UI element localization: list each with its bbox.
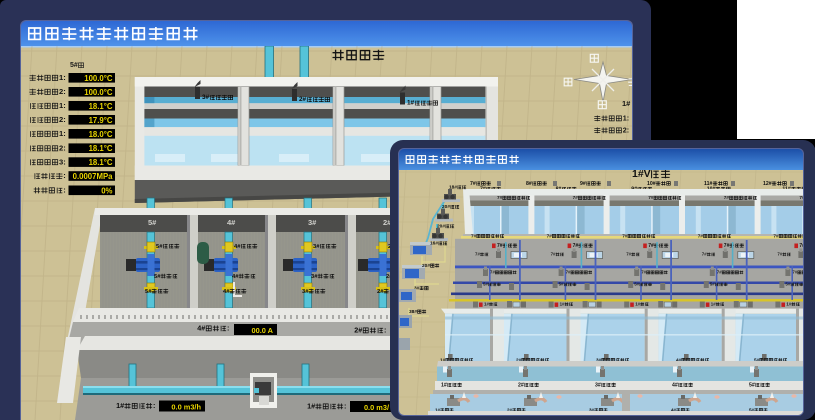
svg-text:3#: 3# xyxy=(313,244,320,250)
svg-text:7#: 7# xyxy=(497,243,503,249)
svg-text:100.0°C: 100.0°C xyxy=(84,88,113,97)
svg-text:7#: 7# xyxy=(648,243,654,249)
svg-text:1:: 1: xyxy=(59,101,66,110)
svg-text::: : xyxy=(384,325,386,334)
svg-text:7#: 7# xyxy=(547,233,553,238)
svg-text:5#: 5# xyxy=(70,62,78,69)
svg-text:38#: 38# xyxy=(409,309,417,315)
svg-text:1:: 1: xyxy=(623,113,629,122)
svg-text::: : xyxy=(63,171,66,180)
svg-text:1#: 1# xyxy=(635,301,640,306)
svg-text:7#: 7# xyxy=(566,270,571,275)
svg-text:0.0007MPa: 0.0007MPa xyxy=(73,172,114,181)
svg-text:5#: 5# xyxy=(710,282,715,287)
svg-text:3:: 3: xyxy=(59,157,66,166)
svg-text:0%: 0% xyxy=(101,186,112,195)
svg-text:1#: 1# xyxy=(441,382,447,388)
svg-text:7#: 7# xyxy=(724,195,730,200)
svg-text:1:: 1: xyxy=(59,129,66,138)
svg-text:7#: 7# xyxy=(622,233,628,238)
svg-text:7#: 7# xyxy=(497,195,503,200)
svg-text:8#: 8# xyxy=(526,181,532,187)
svg-text:7#: 7# xyxy=(475,252,480,257)
svg-text:4#: 4# xyxy=(232,274,239,280)
svg-text:5#: 5# xyxy=(154,274,161,280)
svg-text:18.1°C: 18.1°C xyxy=(89,158,113,167)
svg-text:17.9°C: 17.9°C xyxy=(89,116,113,125)
svg-text:9#: 9# xyxy=(580,181,586,187)
svg-text:5#: 5# xyxy=(634,282,639,287)
svg-text:5#: 5# xyxy=(749,382,755,388)
svg-text:1#: 1# xyxy=(622,99,631,108)
svg-text:100.0°C: 100.0°C xyxy=(84,74,113,83)
svg-text:5#: 5# xyxy=(148,218,157,227)
svg-text:7#: 7# xyxy=(799,195,803,200)
svg-text:7#: 7# xyxy=(799,243,803,249)
svg-text:3#: 3# xyxy=(311,274,318,280)
svg-text:12#: 12# xyxy=(763,181,772,187)
svg-text:2:: 2: xyxy=(59,115,66,124)
svg-text::: : xyxy=(227,323,229,332)
svg-text:5#: 5# xyxy=(156,244,163,250)
svg-text:4#: 4# xyxy=(234,244,241,250)
svg-text:18#: 18# xyxy=(449,185,457,191)
svg-text:2#: 2# xyxy=(299,96,307,103)
svg-text:7#: 7# xyxy=(698,233,704,238)
svg-text:7#: 7# xyxy=(792,270,797,275)
svg-text:1:: 1: xyxy=(59,73,66,82)
svg-text:7#: 7# xyxy=(471,233,477,238)
svg-text::: : xyxy=(344,401,346,410)
svg-text:18.0°C: 18.0°C xyxy=(89,130,113,139)
svg-text:0.0 m3/h: 0.0 m3/h xyxy=(171,402,201,411)
svg-text:7#: 7# xyxy=(641,270,646,275)
svg-text:3#: 3# xyxy=(308,218,317,227)
svg-text:20#: 20# xyxy=(442,204,450,210)
svg-text:5#: 5# xyxy=(559,282,564,287)
svg-text:20#: 20# xyxy=(437,224,445,230)
svg-text:1#: 1# xyxy=(307,401,315,410)
svg-text:18.1°C: 18.1°C xyxy=(89,144,113,153)
svg-text:2:: 2: xyxy=(59,87,66,96)
svg-text:16#: 16# xyxy=(430,241,438,247)
svg-text:1#: 1# xyxy=(116,401,124,410)
svg-text:4#: 4# xyxy=(223,289,230,295)
svg-text:3#: 3# xyxy=(595,382,601,388)
svg-text:7#: 7# xyxy=(551,252,556,257)
svg-text:7#: 7# xyxy=(470,181,476,187)
svg-text:1#: 1# xyxy=(484,301,489,306)
svg-text:4#: 4# xyxy=(227,218,236,227)
svg-text:7#: 7# xyxy=(724,243,730,249)
svg-text:0.0 m3/: 0.0 m3/ xyxy=(364,403,389,412)
svg-text:1#V: 1#V xyxy=(632,170,651,180)
svg-text:3#: 3# xyxy=(202,94,210,101)
svg-text:2#: 2# xyxy=(518,382,524,388)
svg-text:2#: 2# xyxy=(377,289,384,295)
svg-text:1#: 1# xyxy=(560,301,565,306)
svg-text:7#: 7# xyxy=(717,270,722,275)
svg-text:7#: 7# xyxy=(490,270,495,275)
svg-text::: : xyxy=(63,186,66,195)
svg-text:5#: 5# xyxy=(483,282,488,287)
svg-text::: : xyxy=(153,401,155,410)
svg-text:10#: 10# xyxy=(647,181,656,187)
svg-text:7#: 7# xyxy=(573,195,579,200)
svg-text:5#: 5# xyxy=(785,282,790,287)
svg-text:3#: 3# xyxy=(302,289,309,295)
svg-text:1#: 1# xyxy=(407,100,415,107)
svg-text:5#: 5# xyxy=(145,289,152,295)
svg-text:7#: 7# xyxy=(777,252,782,257)
svg-text:4#: 4# xyxy=(672,382,678,388)
svg-text:2:: 2: xyxy=(623,125,629,134)
svg-text:7#: 7# xyxy=(773,233,779,238)
svg-text:4#: 4# xyxy=(197,323,205,332)
svg-text:7#: 7# xyxy=(626,252,631,257)
svg-text:2#: 2# xyxy=(354,325,362,334)
svg-text:1#: 1# xyxy=(786,301,791,306)
svg-text:2:: 2: xyxy=(59,143,66,152)
svg-text:7#: 7# xyxy=(573,243,579,249)
svg-text:1#: 1# xyxy=(711,301,716,306)
svg-text:00.0 A: 00.0 A xyxy=(251,326,273,335)
svg-text:7#: 7# xyxy=(648,195,654,200)
svg-text:7#: 7# xyxy=(702,252,707,257)
svg-text:18.1°C: 18.1°C xyxy=(89,102,113,111)
svg-text:20#: 20# xyxy=(422,263,430,269)
